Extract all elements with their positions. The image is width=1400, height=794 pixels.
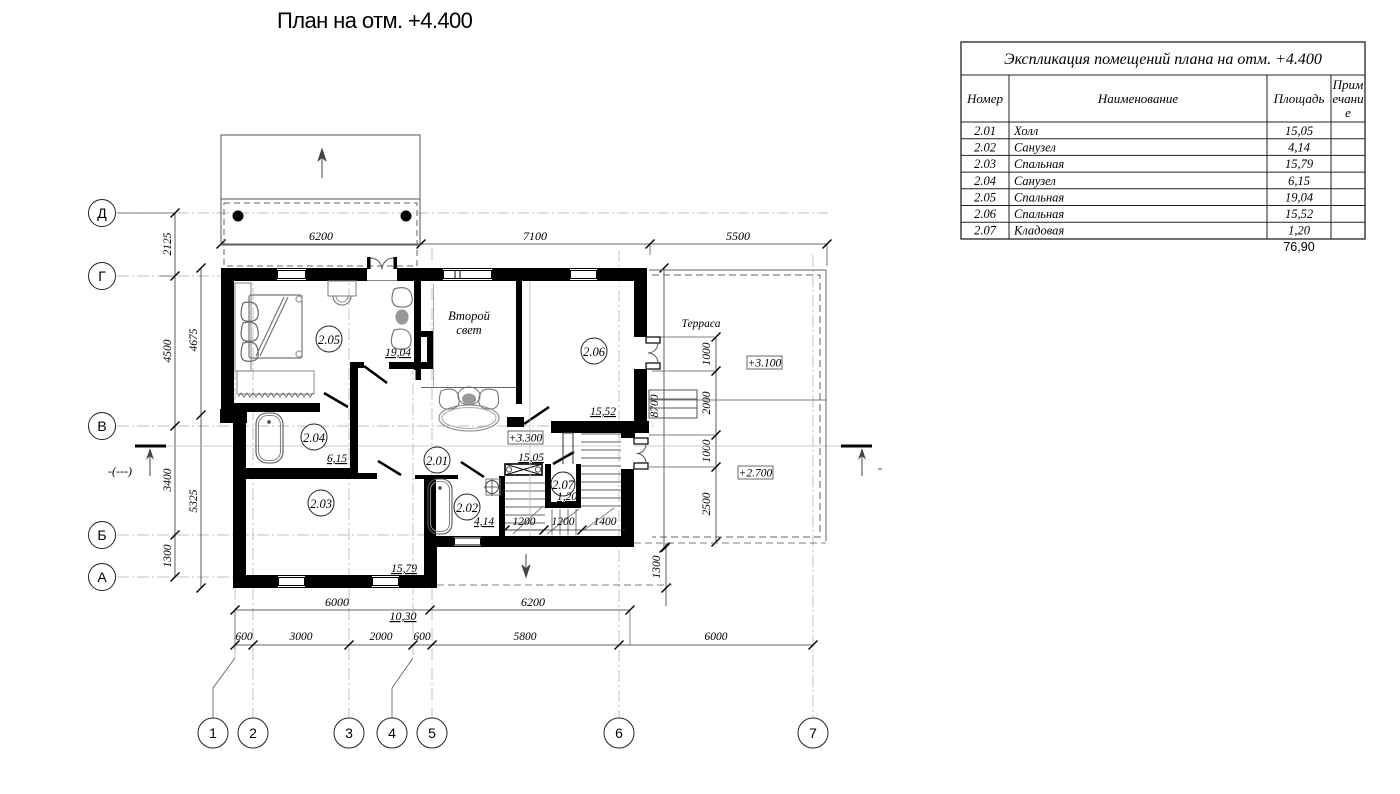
svg-text:5800: 5800 [514,631,537,643]
svg-text:2000: 2000 [701,391,713,414]
svg-text:15,79: 15,79 [391,563,417,575]
svg-text:8700: 8700 [649,394,661,417]
svg-text:15,52: 15,52 [590,406,616,418]
svg-text:2.01: 2.01 [426,454,448,468]
svg-text:1300: 1300 [651,555,663,578]
svg-text:2: 2 [249,725,257,741]
svg-text:4675: 4675 [188,328,200,351]
svg-text:4,14: 4,14 [1288,141,1310,155]
svg-text:Площадь: Площадь [1273,91,1325,106]
svg-text:4500: 4500 [162,339,174,362]
svg-text:ечани: ечани [1332,91,1364,106]
svg-text:Холл: Холл [1013,124,1039,138]
svg-text:Спальная: Спальная [1014,207,1064,221]
svg-text:Г: Г [98,268,106,284]
svg-text:1,20: 1,20 [557,491,577,503]
svg-text:2125: 2125 [162,232,174,255]
svg-text:Экспликация помещений плана на: Экспликация помещений плана на отм. +4.4… [1004,51,1322,68]
svg-text:2500: 2500 [701,492,713,515]
svg-text:2.07: 2.07 [974,224,997,238]
svg-text:3000: 3000 [289,631,313,643]
svg-text:600: 600 [235,631,253,643]
svg-text:1: 1 [209,725,217,741]
svg-text:Второй: Второй [448,309,491,323]
svg-text:Спальная: Спальная [1014,191,1064,205]
svg-text:6,15: 6,15 [327,453,347,465]
svg-text:1200: 1200 [513,516,536,528]
svg-text:1300: 1300 [162,544,174,567]
svg-text:5325: 5325 [188,489,200,512]
svg-text:-(---): -(---) [108,464,132,478]
svg-text:2.04: 2.04 [974,174,996,188]
svg-text:2.06: 2.06 [583,345,606,359]
svg-text:6200: 6200 [309,229,333,243]
svg-text:2.06: 2.06 [974,207,997,221]
svg-text:3400: 3400 [162,468,174,492]
svg-text:1400: 1400 [594,516,617,528]
svg-text:Кладовая: Кладовая [1013,224,1064,238]
svg-text:15,52: 15,52 [1285,207,1313,221]
svg-text:свет: свет [456,323,481,337]
svg-text:6200: 6200 [521,595,545,609]
svg-text:2.01: 2.01 [974,124,996,138]
svg-text:5500: 5500 [726,229,750,243]
svg-text:2000: 2000 [370,631,393,643]
svg-text:В: В [97,418,106,434]
svg-text:План на отм. +4.400: План на отм. +4.400 [277,8,473,33]
svg-text:Санузел: Санузел [1014,141,1056,155]
svg-text:+3.300: +3.300 [509,433,543,445]
svg-text:2.07: 2.07 [552,478,575,492]
svg-text:1000: 1000 [701,342,713,365]
svg-text:4,14: 4,14 [474,516,494,528]
svg-text:+3.100: +3.100 [748,358,782,370]
svg-text:Наименование: Наименование [1097,91,1178,106]
svg-text:4: 4 [388,725,396,741]
svg-text:Спальная: Спальная [1014,157,1064,171]
svg-text:1,20: 1,20 [1288,224,1311,238]
svg-text:15,05: 15,05 [1285,124,1313,138]
svg-text:15,79: 15,79 [1285,157,1314,171]
svg-text:-: - [878,461,882,475]
svg-text:76,90: 76,90 [1283,240,1314,254]
svg-text:7: 7 [809,725,817,741]
svg-text:+2.700: +2.700 [739,468,773,480]
svg-text:15,05: 15,05 [518,452,544,464]
svg-text:Номер: Номер [966,91,1003,106]
svg-text:Санузел: Санузел [1014,174,1056,188]
svg-text:Д: Д [97,205,107,221]
svg-text:19,04: 19,04 [385,347,411,359]
svg-text:2.02: 2.02 [974,141,996,155]
svg-text:19,04: 19,04 [1285,191,1313,205]
svg-text:600: 600 [413,631,431,643]
svg-text:2.05: 2.05 [318,333,340,347]
svg-text:6,15: 6,15 [1288,174,1310,188]
svg-text:10,30: 10,30 [390,609,417,623]
svg-text:Б: Б [97,527,106,543]
svg-text:1200: 1200 [552,516,575,528]
svg-text:6000: 6000 [705,631,728,643]
svg-text:1000: 1000 [701,439,713,462]
svg-text:2.03: 2.03 [310,497,332,511]
svg-text:2.04: 2.04 [303,431,325,445]
svg-text:А: А [97,569,107,585]
svg-text:5: 5 [428,725,436,741]
svg-text:3: 3 [345,725,353,741]
svg-text:е: е [1345,105,1351,120]
svg-text:6000: 6000 [325,595,349,609]
svg-text:Терраса: Терраса [682,318,721,330]
svg-text:7100: 7100 [523,229,547,243]
svg-text:2.05: 2.05 [974,191,996,205]
svg-text:2.03: 2.03 [974,157,996,171]
svg-text:Прим: Прим [1332,77,1364,92]
svg-text:2.02: 2.02 [456,501,478,515]
svg-text:6: 6 [615,725,623,741]
